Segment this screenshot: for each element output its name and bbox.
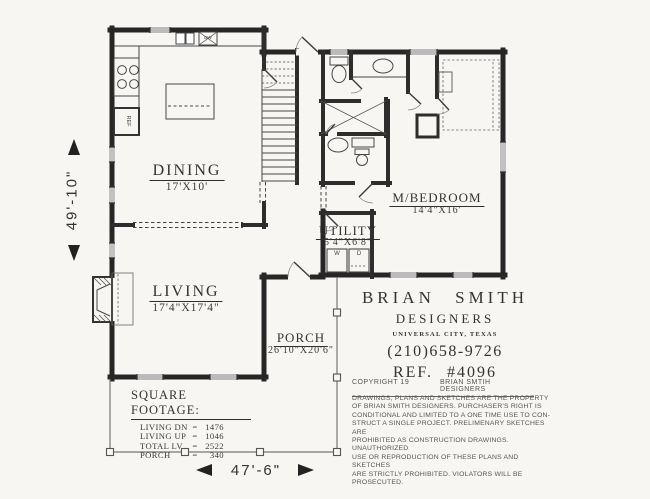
- room-size-utility: 5'4"X6'8": [324, 238, 372, 248]
- fireplace: [93, 273, 133, 325]
- square-footage-rows: LIVING DN = 1476 LIVING UP = 1046 TOTAL …: [131, 423, 251, 461]
- stove-icon: [114, 58, 139, 96]
- firm-phone: (210)658-9726: [345, 343, 545, 361]
- room-size-mbedroom: 14'4"X16': [413, 206, 462, 216]
- refrigerator-label: REF: [124, 116, 130, 127]
- copyright-line: COPYRIGHT 19 BRIAN SMTIH DESIGNERS: [352, 379, 534, 397]
- firm-subname: DESIGNERS: [345, 311, 545, 327]
- interior-walls: [112, 30, 438, 277]
- row-label: PORCH: [140, 451, 190, 460]
- dryer-label: D: [357, 251, 361, 257]
- vanity-sink-icon: [353, 59, 406, 77]
- room-size-dining: 17'X10': [166, 182, 208, 194]
- table-row: PORCH = 340: [140, 451, 251, 460]
- legal-line: DRAWINGS, PLANS AND SKETCHES ARE THE PRO…: [352, 395, 557, 403]
- legal-line: USE OR REPRODUCTION OF THESE PLANS AND S…: [352, 454, 557, 471]
- room-label-dining: DINING: [150, 163, 225, 179]
- row-value: 340: [200, 451, 224, 460]
- title-block: BRIAN SMITH DESIGNERS UNIVERSAL CITY, TE…: [345, 288, 545, 382]
- legal-text: DRAWINGS, PLANS AND SKETCHES ARE THE PRO…: [352, 395, 557, 487]
- washer-label: W: [334, 251, 340, 257]
- sink2-icon: [328, 138, 374, 152]
- room-size-porch: 26'10"X20'6": [268, 346, 334, 356]
- legal-line: PROHIBITED AS CONSTRUCTION DRAWINGS. UNA…: [352, 437, 557, 454]
- toilet-icon: [330, 57, 348, 83]
- dining-name: DINING: [150, 162, 225, 181]
- room-label-living: LIVING: [149, 284, 222, 300]
- closet-shelves: [439, 60, 499, 130]
- firm-location: UNIVERSAL CITY, TEXAS: [345, 331, 545, 338]
- legal-line: OF BRIAN SMITH DESIGNERS. PURCHASER'S RI…: [352, 403, 557, 411]
- room-label-porch: PORCH: [274, 330, 328, 346]
- cased-openings: [133, 182, 326, 228]
- kitchen-counter: [114, 46, 262, 108]
- floor-plan-page: DINING 17'X10' LIVING 17'4"X17'4" M/BEDR…: [0, 0, 650, 499]
- sink-icon: [176, 33, 194, 44]
- stairs: [262, 62, 297, 182]
- width-dimension: 47'-6": [231, 463, 281, 478]
- height-dimension: 49'-10": [64, 170, 81, 231]
- copyright-left: COPYRIGHT 19: [352, 379, 440, 393]
- kitchen-island: [166, 84, 214, 119]
- square-footage-table: SQUARE FOOTAGE: LIVING DN = 1476 LIVING …: [131, 388, 251, 461]
- dishwasher-label: DW: [204, 36, 212, 41]
- legal-line: STRUCT A SINGLE PROJECT. PRELIMENARY SKE…: [352, 420, 557, 437]
- room-size-living: 17'4"X17'4": [152, 303, 219, 315]
- square-footage-title: SQUARE FOOTAGE:: [131, 388, 251, 420]
- row-eq: =: [190, 451, 200, 460]
- legal-line: CONDITIONAL AND LIMITED TO A ONE TIME US…: [352, 412, 557, 420]
- toilet2-icon: [355, 149, 369, 166]
- firm-name: BRIAN SMITH: [345, 288, 545, 308]
- room-label-mbedroom: M/BEDROOM: [389, 190, 484, 206]
- legal-line: ARE STRICTLY PROHIBITED. VIOLATORS WILL …: [352, 471, 557, 488]
- copyright-right: BRIAN SMTIH DESIGNERS: [440, 379, 534, 393]
- living-name: LIVING: [149, 283, 222, 302]
